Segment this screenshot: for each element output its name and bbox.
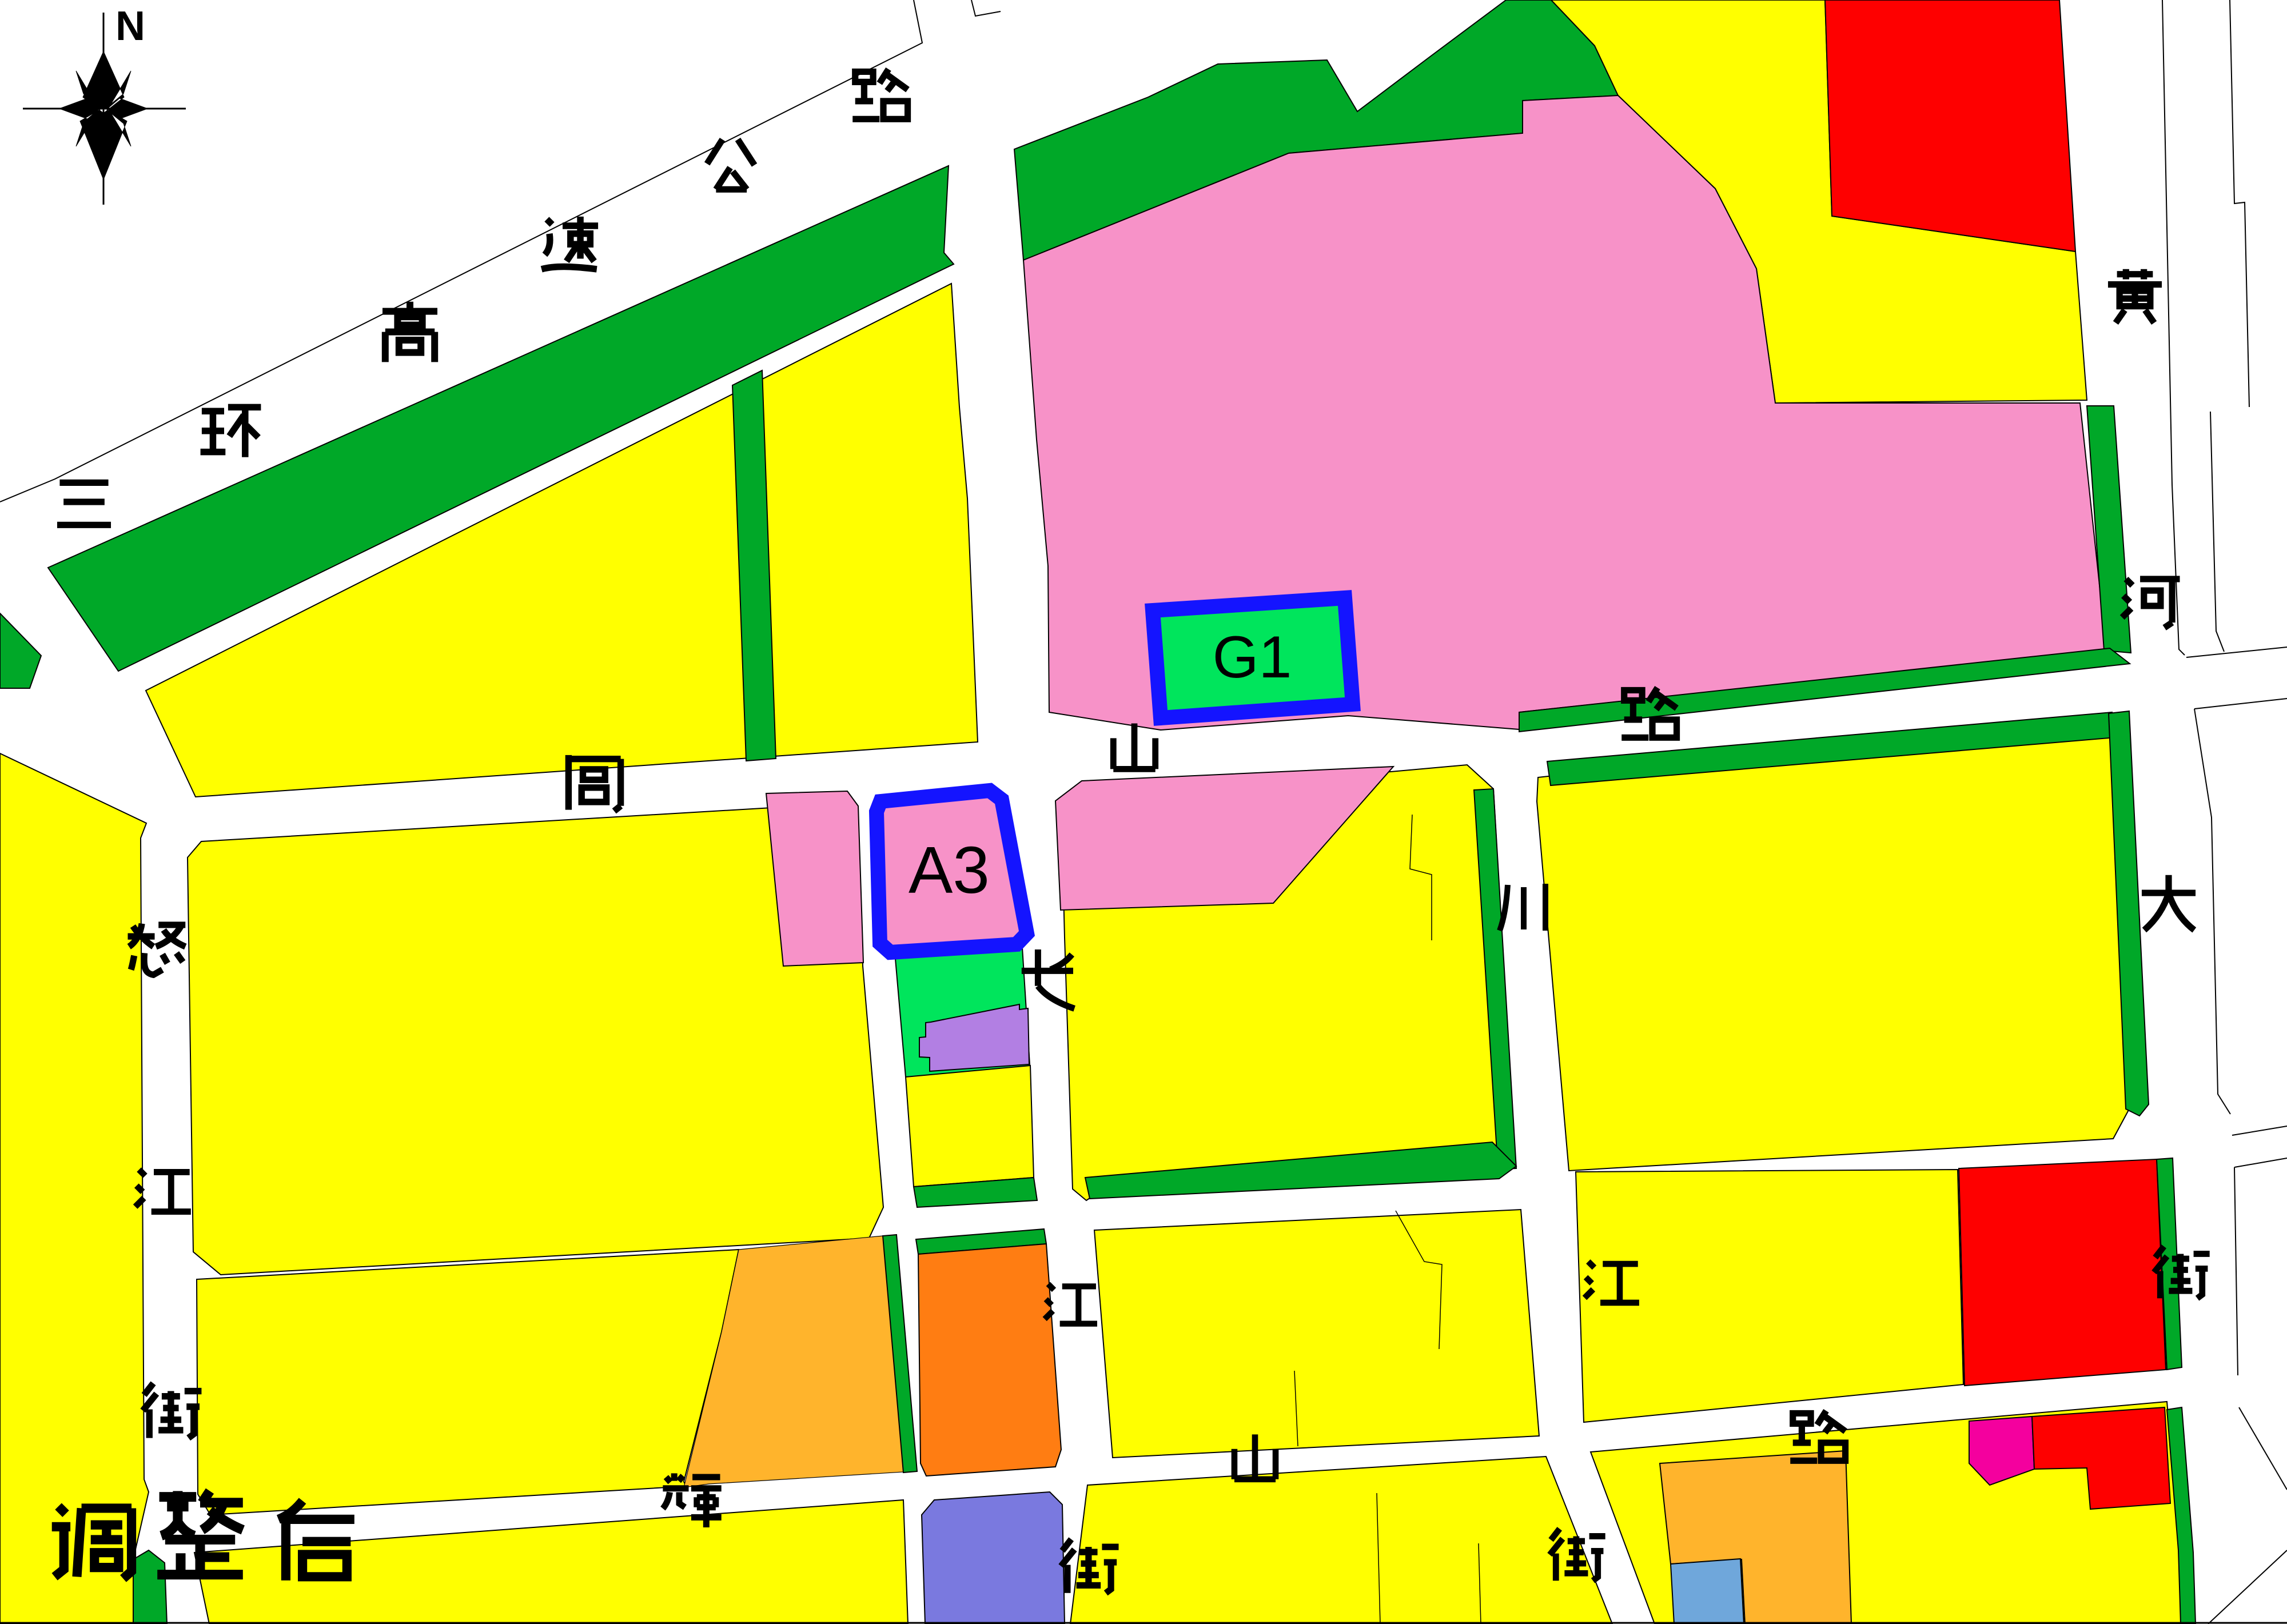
svg-text:A3: A3 (909, 833, 990, 907)
svg-text:G1: G1 (1213, 624, 1292, 691)
svg-text:N: N (115, 3, 145, 49)
